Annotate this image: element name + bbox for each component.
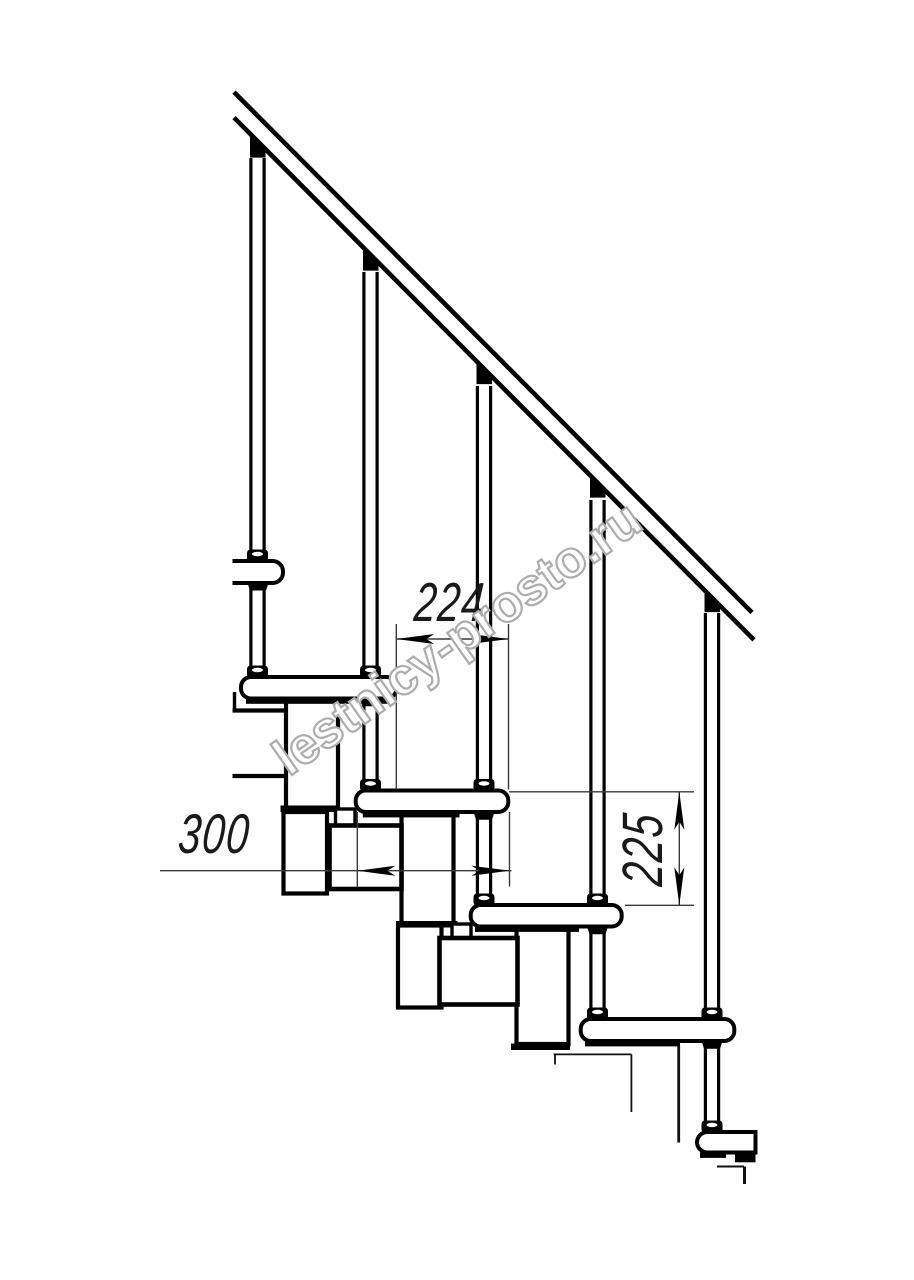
svg-text:300: 300 (176, 804, 253, 866)
svg-text:225: 225 (610, 810, 674, 889)
